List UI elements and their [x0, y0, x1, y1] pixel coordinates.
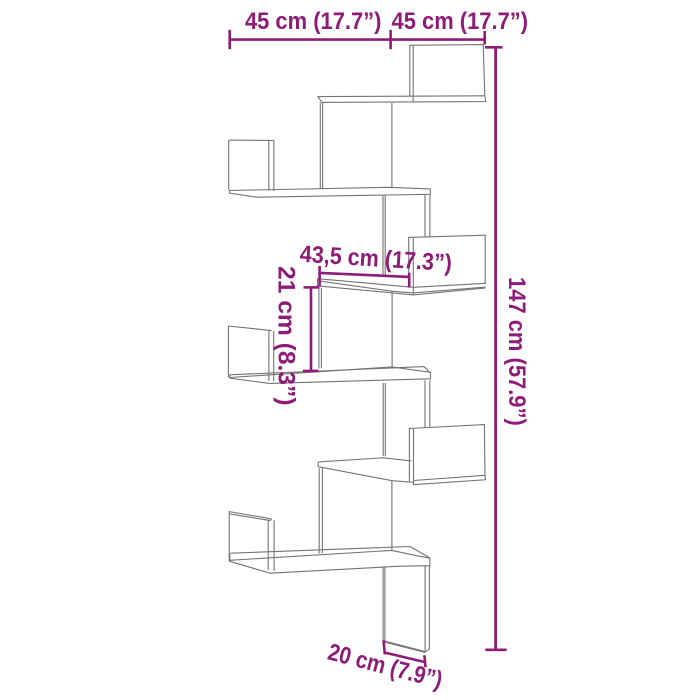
svg-text:21 cm (8.3”): 21 cm (8.3”) — [272, 266, 299, 406]
svg-text:147 cm (57.9”): 147 cm (57.9”) — [503, 277, 530, 426]
svg-text:45 cm (17.7”): 45 cm (17.7”) — [245, 8, 382, 35]
svg-text:45 cm (17.7”): 45 cm (17.7”) — [392, 8, 529, 35]
